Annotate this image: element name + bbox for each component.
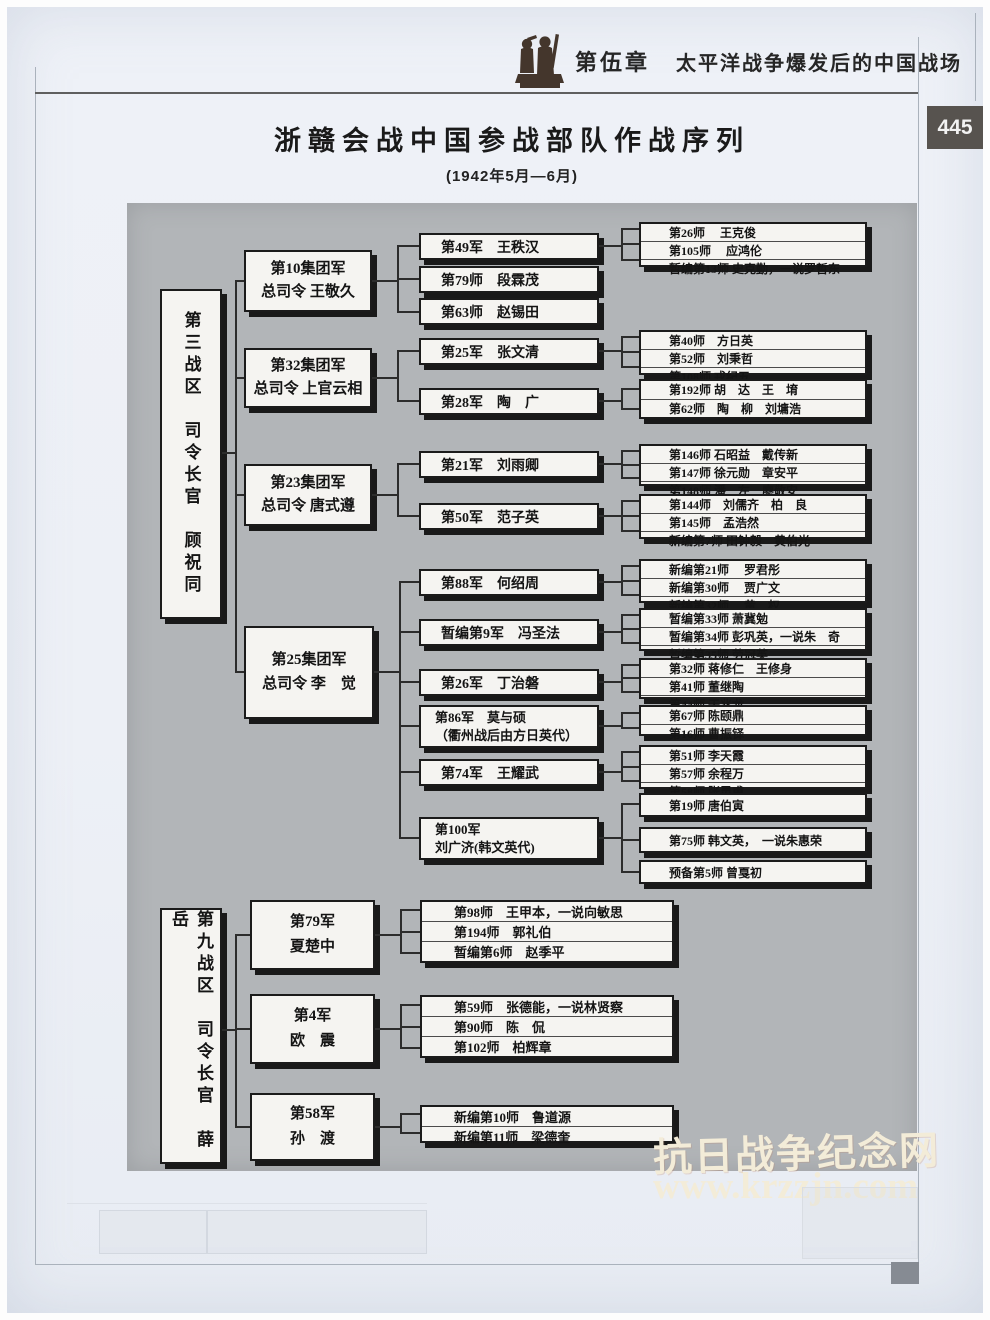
division-row: 第147师 徐元勋 章安平 xyxy=(641,463,865,481)
bleed-through-line xyxy=(67,1203,427,1204)
division-group: 第192师 胡 达 王 堉 第62师 陶 柳 刘墉浩 xyxy=(639,379,867,419)
division-79-box: 第79师 段霖茂 xyxy=(419,266,599,293)
unit-name: 第4军 xyxy=(294,1004,332,1030)
division-row: 新编第21师 罗君彤 xyxy=(641,561,865,578)
army-4-box: 第4军 欧 震 xyxy=(250,994,375,1064)
division-pre5-box: 预备第5师 曾戛初 xyxy=(639,860,867,884)
division-row: 第98师 王甲本，一说向敏思 xyxy=(422,902,672,921)
bleed-through-box xyxy=(207,1210,427,1254)
war-zone-9-hq-box: 第九战区 司令长官 薛 岳 xyxy=(160,908,222,1164)
army-79-box: 第79军 夏楚中 xyxy=(250,900,375,970)
scanned-page: 第伍章 太平洋战争爆发后的中国战场 445 浙赣会战中国参战部队作战序列 (19… xyxy=(0,0,990,1320)
army-88-box: 第88军 何绍周 xyxy=(419,569,599,596)
group-army-10-box: 第10集团军 总司令 王敬久 xyxy=(244,250,372,312)
division-row: 新编第30师 贾广文 xyxy=(641,578,865,596)
division-group: 暂编第33师 萧冀勉 暂编第34师 彭巩英，一说朱 奇 暂编第35师 劳冠英 xyxy=(639,608,867,651)
army-temp9-box: 暂编第9军 冯圣法 xyxy=(419,619,599,646)
division-group: 第51师 李天霞 第57师 余程万 第58师 张灵甫 xyxy=(639,745,867,789)
unit-commander: 总司令 李 觉 xyxy=(262,673,356,696)
army-25-box: 第25军 张文清 xyxy=(419,338,599,365)
war-zone-3-hq-box: 第三战区 司令长官 顾祝同 xyxy=(160,289,222,619)
division-row: 第26师 王克俊 xyxy=(641,224,865,241)
army-50-box: 第50军 范子英 xyxy=(419,503,599,530)
division-row: 第16师 曹振铎 xyxy=(641,724,865,742)
unit-commander: 刘广济(韩文英代) xyxy=(435,839,535,857)
unit-name: 第58军 xyxy=(290,1102,335,1128)
bottom-page-rule xyxy=(35,1264,918,1265)
division-row: 暂编第6师 赵季平 xyxy=(422,941,672,961)
unit-commander: 孙 渡 xyxy=(290,1127,335,1153)
division-19-box: 第19师 唐伯寅 xyxy=(639,793,867,817)
division-row: 暂编第13师 史克勤，一说罗哲东 xyxy=(641,259,865,277)
unit-name: 第23集团军 xyxy=(270,472,345,495)
army-86-box: 第86军 莫与硕 （衢州战后由方日英代） xyxy=(419,705,599,748)
division-row: 新编第10师 鲁道源 xyxy=(422,1107,672,1126)
division-group: 新编第21师 罗君彤 新编第30师 贾广文 新编第32师 黄 权 xyxy=(639,559,867,603)
bleed-through-box xyxy=(802,1187,918,1259)
division-row: 第40师 方日英 xyxy=(641,332,865,349)
division-row: 第59师 张德能，一说林贤察 xyxy=(422,997,672,1016)
army-74-box: 第74军 王耀武 xyxy=(419,759,599,786)
group-army-32-box: 第32集团军 总司令 上官云相 xyxy=(244,348,372,408)
division-row: 第57师 余程万 xyxy=(641,764,865,782)
division-row: 第52师 刘秉哲 xyxy=(641,349,865,367)
page-subtitle: (1942年5月—6月) xyxy=(127,165,897,186)
division-group: 第67师 陈颐鼎 第16师 曹振铎 xyxy=(639,705,867,736)
army-49-box: 第49军 王秩汉 xyxy=(419,233,599,260)
division-row: 暂编第34师 彭巩英，一说朱 奇 xyxy=(641,627,865,645)
outer-right-rule xyxy=(975,13,976,101)
division-row: 第192师 胡 达 王 堉 xyxy=(641,381,865,399)
division-row: 暂编第33师 萧冀勉 xyxy=(641,610,865,627)
army-26-box: 第26军 丁治磐 xyxy=(419,669,599,696)
army-28-box: 第28军 陶 广 xyxy=(419,388,599,415)
division-row: 第41师 董继陶 xyxy=(641,677,865,695)
division-group: 第26师 王克俊 第105师 应鸿伦 暂编第13师 史克勤，一说罗哲东 xyxy=(639,222,867,267)
bleed-through-box xyxy=(99,1210,207,1254)
page-title: 浙赣会战中国参战部队作战序列 xyxy=(127,119,897,158)
division-75-box: 第75师 韩文英， 一说朱惠荣 xyxy=(639,827,867,853)
army-58-box: 第58军 孙 渡 xyxy=(250,1093,375,1161)
soldier-statue-icon xyxy=(512,33,568,96)
division-group: 第146师 石昭益 戴传新 第147师 徐元勋 章安平 第148师 潘 左 廖敬… xyxy=(639,444,867,486)
unit-commander: 欧 震 xyxy=(290,1029,335,1055)
left-page-rule xyxy=(35,67,36,1265)
unit-commander: 总司令 上官云相 xyxy=(254,378,363,401)
division-row: 第144师 刘儒齐 柏 良 xyxy=(641,496,865,513)
division-row: 第67师 陈颐鼎 xyxy=(641,707,865,724)
unit-commander: 总司令 唐式遵 xyxy=(261,495,355,518)
division-63-box: 第63师 赵锡田 xyxy=(419,298,599,325)
unit-note: （衢州战后由方日英代） xyxy=(435,727,578,745)
group-army-25-box: 第25集团军 总司令 李 觉 xyxy=(244,626,374,719)
division-group: 第40师 方日英 第52师 刘秉哲 第108师 戎纪五 xyxy=(639,330,867,375)
division-group: 第32师 蒋修仁 王修身 第41师 董继陶 第44师 于兆龙 xyxy=(639,658,867,699)
division-group: 第98师 王甲本，一说向敏思 第194师 郭礼伯 暂编第6师 赵季平 xyxy=(420,900,674,963)
chapter-label: 第伍章 xyxy=(575,45,650,77)
division-row: 第62师 陶 柳 刘墉浩 xyxy=(641,399,865,418)
unit-name: 第86军 莫与硕 xyxy=(435,709,526,727)
unit-commander: 总司令 王敬久 xyxy=(261,281,355,304)
unit-commander: 夏楚中 xyxy=(290,935,335,961)
army-21-box: 第21军 刘雨卿 xyxy=(419,451,599,478)
page-number-badge: 445 xyxy=(927,106,983,149)
division-row: 第105师 应鸿伦 xyxy=(641,241,865,259)
division-group: 第144师 刘儒齐 柏 良 第145师 孟浩然 新编第7师 田钟毅 黄伯光 xyxy=(639,494,867,539)
division-row: 第90师 陈 侃 xyxy=(422,1016,672,1036)
division-row: 第145师 孟浩然 xyxy=(641,513,865,531)
division-row: 第51师 李天霞 xyxy=(641,747,865,764)
unit-name: 第100军 xyxy=(435,821,481,839)
unit-name: 第32集团军 xyxy=(270,355,345,378)
chapter-title: 太平洋战争爆发后的中国战场 xyxy=(676,47,962,76)
division-row: 第194师 郭礼伯 xyxy=(422,921,672,941)
header-divider xyxy=(35,92,918,94)
unit-name: 第10集团军 xyxy=(270,258,345,281)
army-100-box: 第100军 刘广济(韩文英代) xyxy=(419,817,599,860)
division-row: 第146师 石昭益 戴传新 xyxy=(641,446,865,463)
section-end-block xyxy=(891,1262,919,1284)
unit-name: 第79军 xyxy=(290,910,335,936)
division-group: 新编第10师 鲁道源 新编第11师 梁德奎 xyxy=(420,1105,674,1143)
division-group: 第59师 张德能，一说林贤察 第90师 陈 侃 第102师 柏辉章 xyxy=(420,995,674,1058)
division-row: 新编第11师 梁德奎 xyxy=(422,1126,672,1146)
group-army-23-box: 第23集团军 总司令 唐式遵 xyxy=(244,464,372,526)
unit-name: 第25集团军 xyxy=(271,649,346,672)
division-row: 新编第7师 田钟毅 黄伯光 xyxy=(641,531,865,549)
division-row: 第32师 蒋修仁 王修身 xyxy=(641,660,865,677)
division-row: 第102师 柏辉章 xyxy=(422,1036,672,1056)
right-page-rule xyxy=(918,37,919,1265)
